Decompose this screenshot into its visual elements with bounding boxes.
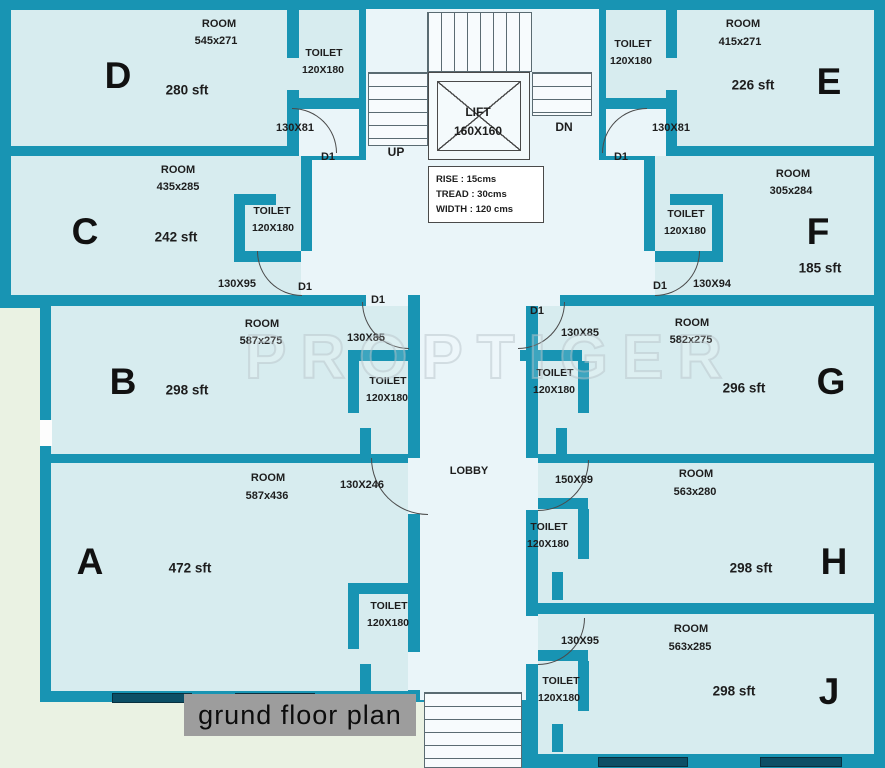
toilet-h-size: 120X180 [527,538,569,550]
toilet-f-wall [670,194,723,205]
toilet-g-size: 120X180 [533,384,575,396]
window [112,693,192,703]
toilet-b-size: 120X180 [366,392,408,404]
stair-note-tread: TREAD : 30cms [436,187,536,202]
unit-j-dims: 563x285 [669,641,712,653]
toilet-f-size: 120X180 [664,225,706,237]
unit-d-room-label: ROOM [202,18,236,30]
toilet-c-wall [234,194,276,205]
toilet-a-size: 120X180 [367,617,409,629]
unit-g-letter: G [817,361,846,403]
unit-b-area: 298 sft [166,383,209,398]
unit-d-area: 280 sft [166,83,209,98]
opening-e-lift: 130X81 [652,122,690,134]
unit-a-letter: A [77,541,104,583]
unit-g-room-label: ROOM [675,317,709,329]
unit-e-room-label: ROOM [726,18,760,30]
toilet-e-label: TOILET [614,38,651,50]
door-opening [526,616,538,664]
door-opening [408,652,420,690]
unit-h-letter: H [821,541,848,583]
door-opening [666,58,677,90]
toilet-d-label: TOILET [305,47,342,59]
unit-b-room-label: ROOM [245,318,279,330]
stair-flight-right [532,72,592,116]
toilet-c-label: TOILET [253,205,290,217]
toilet-c-size: 120X180 [252,222,294,234]
unit-j-room-label: ROOM [674,623,708,635]
room-d-floor [11,10,287,146]
unit-f-dims: 305x284 [770,185,813,197]
toilet-f-label: TOILET [667,208,704,220]
plan-title: grund floor plan [184,694,416,736]
stair-note-rise: RISE : 15cms [436,172,536,187]
toilet-a-label: TOILET [370,600,407,612]
unit-f-area: 185 sft [799,261,842,276]
stair-note: RISE : 15cms TREAD : 30cms WIDTH : 120 c… [428,166,544,223]
opening-a-lobby: 130X246 [340,479,384,491]
toilet-b-label: TOILET [369,375,406,387]
door-d1: D1 [371,294,385,306]
toilet-a-wall [348,594,359,649]
opening-d-lift: 130X81 [276,122,314,134]
stair-flight-top [427,12,532,72]
window-gap [40,420,52,446]
door-d1: D1 [653,280,667,292]
toilet-a-wall [348,583,408,594]
door-d1: D1 [321,151,335,163]
toilet-b-wall [348,361,359,413]
unit-e-area: 226 sft [732,78,775,93]
stair-dn-label: DN [555,120,572,134]
unit-j-area: 298 sft [713,684,756,699]
toilet-g-wall [556,428,567,454]
toilet-j-size: 120X180 [538,692,580,704]
unit-a-dims: 587x436 [246,490,289,502]
door-opening [287,58,299,90]
room-e-floor [677,10,874,146]
window [598,757,688,767]
toilet-j-label: TOILET [542,675,579,687]
unit-a-room-label: ROOM [251,472,285,484]
lift-size-label: 160X160 [454,124,502,138]
window [760,757,842,767]
lobby-label: LOBBY [450,465,489,477]
unit-c-letter: C [72,211,99,253]
toilet-g-label: TOILET [536,367,573,379]
opening-j-lobby: 130X95 [561,635,599,647]
opening-f-hall: 130X94 [693,278,731,290]
floor-plan: LIFT 160X160 UP DN RISE : 15cms TREAD : … [0,0,885,768]
door-opening [420,295,526,306]
unit-j-letter: J [819,671,840,713]
stair-note-width: WIDTH : 120 cms [436,202,536,217]
toilet-g-wall [578,361,589,413]
unit-e-dims: 415x271 [719,36,762,48]
door-opening [526,458,538,510]
toilet-g-wall [520,350,582,361]
unit-b-letter: B [110,361,137,403]
unit-f-letter: F [807,211,830,253]
room-a-floor [51,463,408,691]
opening-g-lobby: 130X85 [561,327,599,339]
unit-d-letter: D [105,55,132,97]
opening-b-lobby: 130X85 [347,332,385,344]
unit-a-area: 472 sft [169,561,212,576]
toilet-e-floor [606,10,666,98]
toilet-j-wall [552,724,563,752]
door-d1: D1 [530,305,544,317]
unit-h-area: 298 sft [730,561,773,576]
unit-c-area: 242 sft [155,230,198,245]
unit-h-dims: 563x280 [674,486,717,498]
unit-f-room-label: ROOM [776,168,810,180]
unit-g-area: 296 sft [723,381,766,396]
unit-b-dims: 587x275 [240,335,283,347]
unit-d-dims: 545x271 [195,35,238,47]
lobby-floor [420,306,526,700]
stair-flight-left [368,72,428,146]
toilet-b-wall [360,428,371,454]
unit-c-dims: 435x285 [157,181,200,193]
toilet-h-wall [578,509,589,559]
opening-h-lobby: 150X89 [555,474,593,486]
door-d1: D1 [614,151,628,163]
door-d1: D1 [298,281,312,293]
entrance-steps [424,692,522,768]
unit-h-room-label: ROOM [679,468,713,480]
unit-c-room-label: ROOM [161,164,195,176]
toilet-d-size: 120X180 [302,64,344,76]
lift-label: LIFT [465,105,490,119]
unit-e-letter: E [817,61,842,103]
toilet-h-wall [552,572,563,600]
toilet-b-wall [348,350,408,361]
toilet-e-size: 120X180 [610,55,652,67]
toilet-a-wall [360,664,371,691]
stair-up-label: UP [388,145,405,159]
toilet-h-label: TOILET [530,521,567,533]
unit-g-dims: 582x275 [670,334,713,346]
opening-c-hall: 130X95 [218,278,256,290]
